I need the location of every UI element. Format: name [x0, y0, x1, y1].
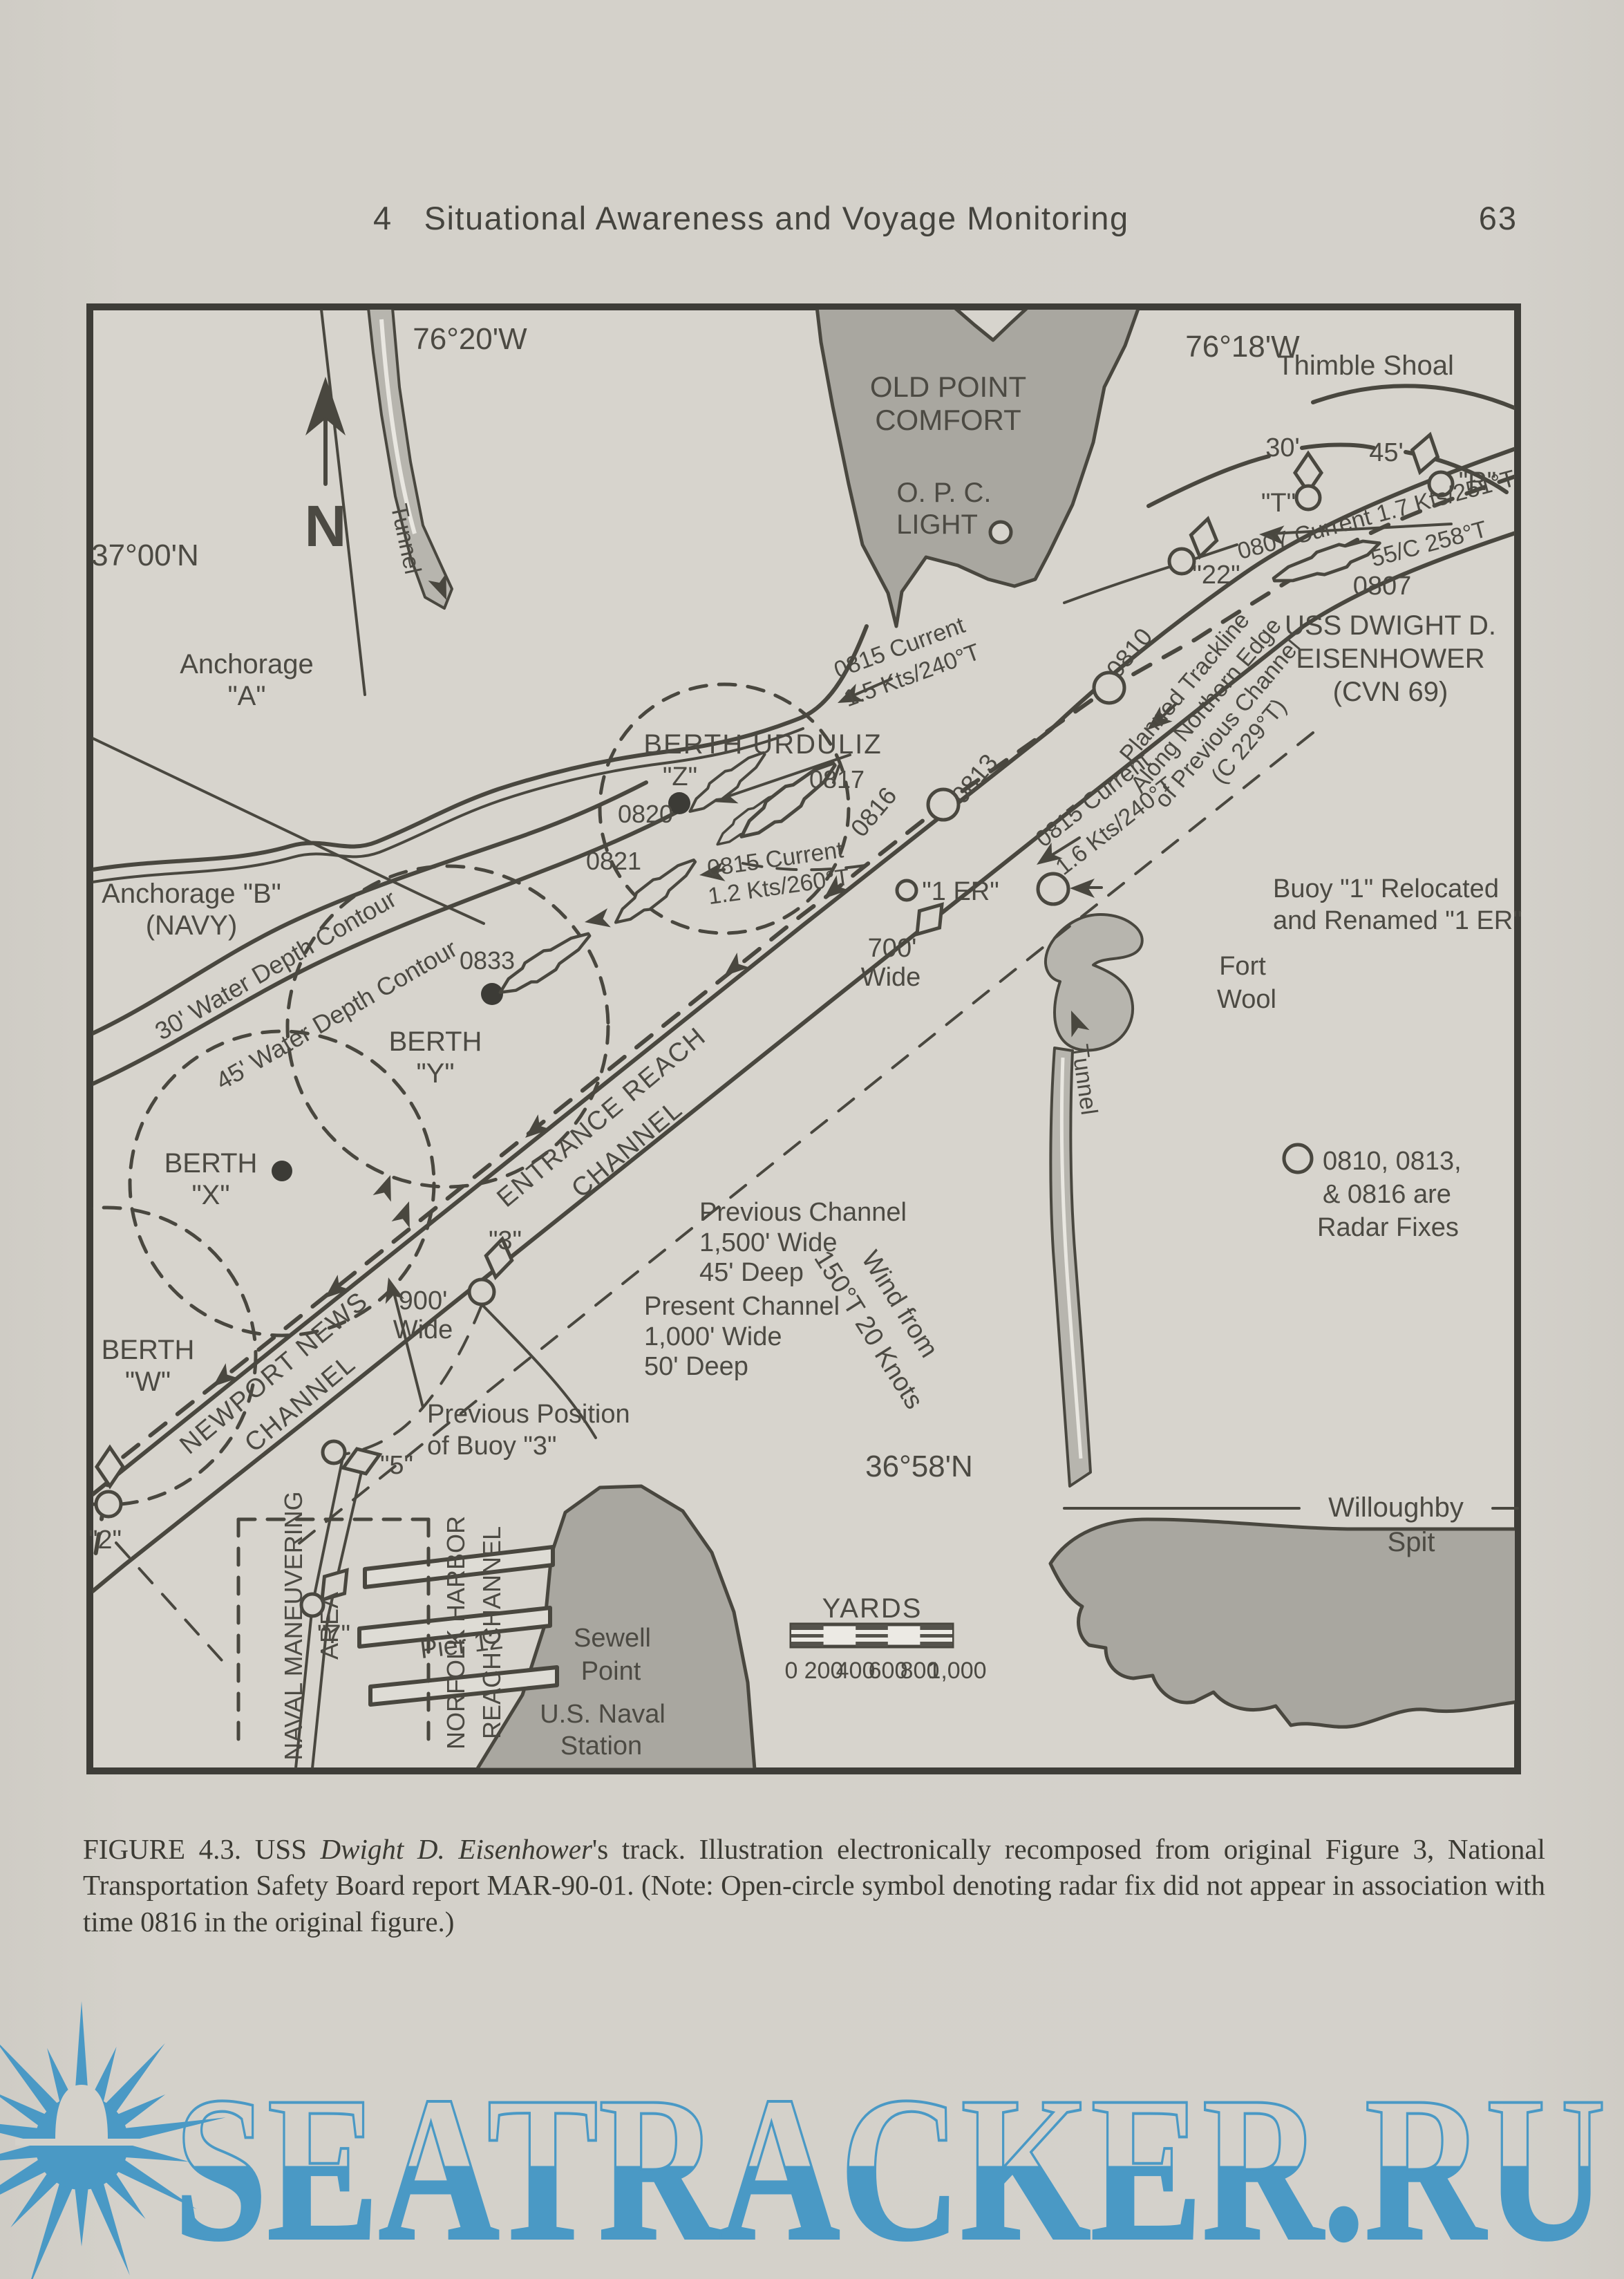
label-pres-channel-2: 1,000' Wide — [644, 1322, 782, 1351]
watermark: SEATRACKER.RU — [0, 2001, 1606, 2279]
label-scale-title: YARDS — [822, 1593, 923, 1624]
label-berth-x-2: "X" — [191, 1180, 229, 1210]
figure-caption: FIGURE 4.3. USS Dwight D. Eisenhower's t… — [83, 1831, 1545, 1940]
label-fix-0807: 0807 — [1353, 572, 1412, 601]
label-berth-w-1: BERTH — [102, 1335, 195, 1365]
label-ship-name-1: USS DWIGHT D. — [1285, 610, 1496, 641]
label-900-wide-1: 900' — [399, 1286, 448, 1315]
label-prev-channel-2: 1,500' Wide — [699, 1228, 837, 1257]
label-sewell-1: Sewell — [574, 1624, 651, 1653]
scale-seg-1 — [791, 1624, 824, 1647]
label-berth-z: "Z" — [663, 762, 697, 791]
radar-legend-circle — [1284, 1145, 1312, 1172]
label-opc-light-1: O. P. C. — [896, 478, 991, 508]
label-fix-0820: 0820 — [618, 800, 673, 828]
label-sewell-2: Point — [581, 1657, 641, 1686]
berth-x-dot — [272, 1161, 292, 1181]
buoy-5-circle — [323, 1441, 345, 1463]
scale-seg-3 — [856, 1624, 888, 1647]
label-lat-left: 37°00'N — [91, 538, 199, 572]
label-ship-name-2: EISENHOWER — [1296, 644, 1484, 674]
label-naval-station-2: Station — [560, 1732, 642, 1761]
label-berth-y-2: "Y" — [416, 1058, 454, 1089]
label-naval-area-2: AREA — [315, 1592, 343, 1660]
label-fort-wool-2: Wool — [1217, 985, 1276, 1014]
label-prevpos-1: Previous Position — [427, 1400, 630, 1429]
caption-lead: FIGURE 4.3. USS — [83, 1833, 321, 1865]
label-buoy-t: "T" — [1261, 489, 1296, 518]
label-prev-channel-1: Previous Channel — [699, 1198, 907, 1227]
label-buoy1-note-2: and Renamed "1 ER" — [1273, 906, 1522, 935]
label-buoy-22: "22" — [1192, 561, 1240, 590]
label-anchorage-a-2: "A" — [227, 681, 265, 711]
scale-tick-labels: 0 200 400 600 800 1,000 — [785, 1658, 987, 1684]
opc-light-circle — [990, 522, 1011, 543]
label-opc-light-2: LIGHT — [896, 509, 978, 540]
buoy-t-circle — [1296, 486, 1320, 509]
label-anchorage-a-1: Anchorage — [180, 649, 313, 679]
label-buoy1-note-1: Buoy "1" Relocated — [1273, 874, 1499, 903]
label-fort-wool-1: Fort — [1219, 952, 1266, 981]
scale-bar — [791, 1624, 952, 1647]
scale-seg-5 — [920, 1624, 952, 1647]
label-lat-bottom: 36°58'N — [865, 1450, 973, 1483]
label-willoughby-1: Willoughby — [1328, 1492, 1464, 1523]
label-fix-0817: 0817 — [809, 765, 865, 794]
buoy-3-circle — [469, 1279, 494, 1304]
label-700-wide-1: 700' — [868, 934, 917, 963]
watermark-text: SEATRACKER.RU — [174, 2054, 1606, 2279]
label-berth-y-1: BERTH — [389, 1026, 482, 1057]
label-north: N — [305, 494, 347, 559]
label-anchorage-b-1: Anchorage "B" — [102, 879, 281, 909]
scale-tick-0: 0 — [785, 1658, 798, 1684]
label-radar-note-3: Radar Fixes — [1317, 1213, 1459, 1242]
label-berth-urduliz: BERTH URDULIZ — [643, 729, 882, 760]
label-fix-0833: 0833 — [460, 946, 515, 975]
label-ship-name-3: (CVN 69) — [1333, 677, 1448, 707]
label-prev-channel-3: 45' Deep — [699, 1258, 804, 1287]
label-depth-30: 30' — [1265, 433, 1300, 462]
label-berth-w-2: "W" — [125, 1367, 171, 1397]
buoy-2-circle — [96, 1492, 121, 1517]
fix-0833-dot — [481, 983, 503, 1005]
label-pres-channel-3: 50' Deep — [644, 1352, 748, 1381]
label-buoy-1er: "1 ER" — [922, 877, 999, 906]
label-lon-top: 76°20'W — [413, 322, 527, 356]
old-buoy-1-position — [1038, 874, 1068, 904]
label-opc-2: COMFORT — [875, 404, 1021, 436]
label-prevpos-2: of Buoy "3" — [427, 1432, 557, 1461]
label-thimble-shoal: Thimble Shoal — [1277, 350, 1454, 381]
label-opc-1: OLD POINT — [870, 371, 1026, 403]
label-depth-45: 45' — [1369, 438, 1404, 467]
label-radar-note-2: & 0816 are — [1323, 1180, 1451, 1209]
label-700-wide-2: Wide — [861, 963, 921, 992]
label-buoy-2: "2" — [88, 1526, 122, 1555]
book-page: 4 Situational Awareness and Voyage Monit… — [0, 0, 1624, 2279]
label-buoy-3: "3" — [489, 1226, 522, 1255]
label-willoughby-2: Spit — [1388, 1527, 1435, 1557]
label-radar-note-1: 0810, 0813, — [1323, 1147, 1462, 1176]
label-berth-x-1: BERTH — [164, 1148, 258, 1179]
label-anchorage-b-2: (NAVY) — [146, 910, 238, 941]
label-fix-0821: 0821 — [586, 847, 641, 875]
label-pres-channel-1: Present Channel — [644, 1292, 840, 1321]
caption-ship-name: Dwight D. Eisenhower — [321, 1833, 592, 1865]
buoy-22-circle — [1169, 549, 1194, 574]
label-buoy-5: "5" — [380, 1451, 413, 1480]
buoy-1er-circle — [897, 881, 916, 900]
label-naval-area-1: NAVAL MANEUVERING — [279, 1491, 308, 1760]
label-900-wide-2: Wide — [393, 1315, 453, 1344]
scale-tick-1000: 1,000 — [927, 1658, 986, 1684]
label-naval-station-1: U.S. Naval — [540, 1700, 665, 1729]
watermark-sun-horizon — [15, 2139, 149, 2146]
